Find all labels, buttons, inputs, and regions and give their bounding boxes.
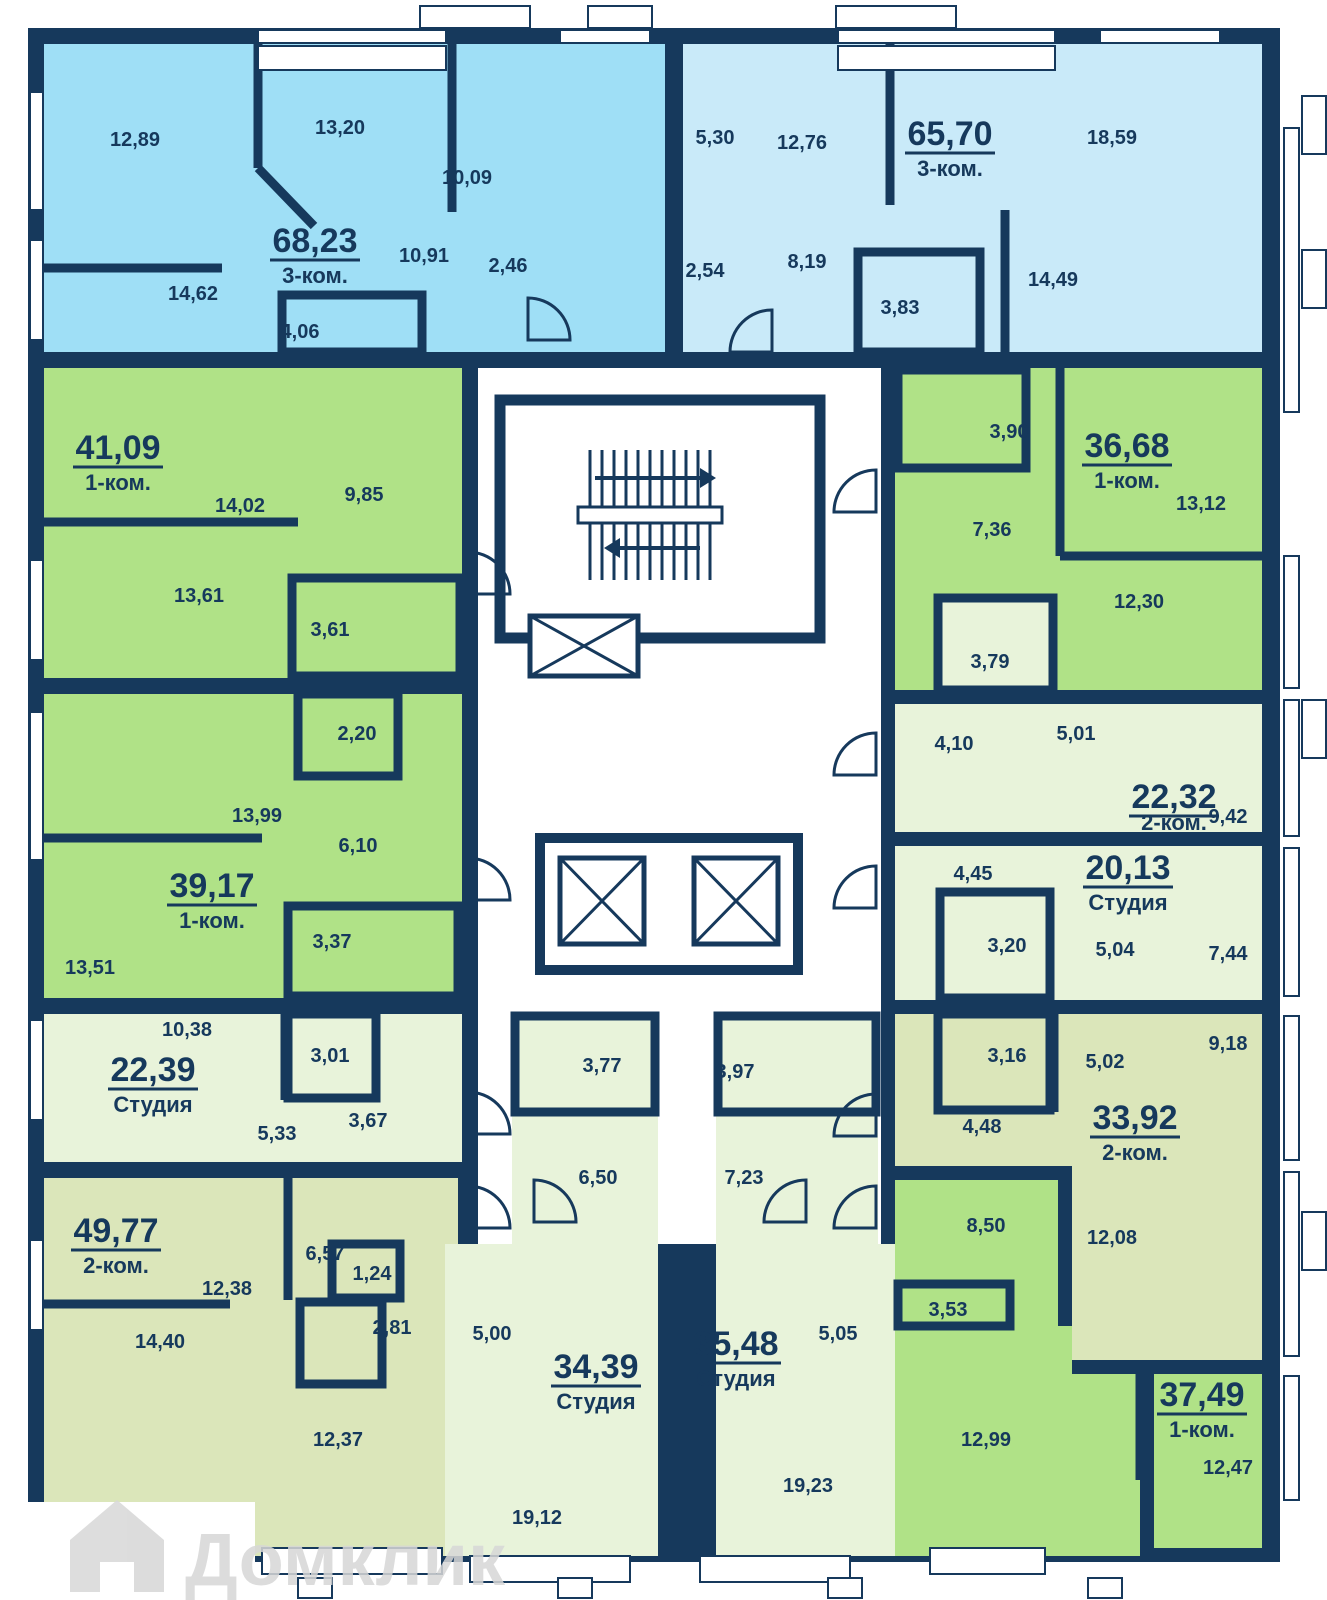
room-area-label: 12,47: [1203, 1457, 1253, 1479]
apartment-area-label: 65,70: [907, 115, 992, 153]
room-area-label: 13,12: [1176, 493, 1226, 515]
room-area-label: 12,89: [110, 129, 160, 151]
room-area-label: 5,02: [1086, 1051, 1125, 1073]
room-area-label: 3,37: [313, 931, 352, 953]
room-area-label: 5,04: [1096, 939, 1136, 961]
room-area-label: 5,00: [473, 1323, 512, 1345]
room-area-label: 3,01: [311, 1045, 350, 1067]
room-area-label: 3,61: [311, 619, 350, 641]
room-area-label: 5,30: [696, 127, 735, 149]
room-area-label: 5,01: [1057, 723, 1096, 745]
balcony-rail-top-left: [258, 46, 446, 70]
apartment-type-label: 2-ком.: [1141, 810, 1207, 835]
elevator-shaft-2: [560, 858, 644, 944]
room-area-label: 6,50: [579, 1167, 618, 1189]
room-area-label: 10,91: [399, 245, 449, 267]
apartment-type-label: Студия: [556, 1389, 635, 1414]
room-area-label: 10,38: [162, 1019, 212, 1041]
room-area-label: 7,44: [1209, 943, 1249, 965]
room-area-label: 1,24: [353, 1263, 393, 1285]
room-area-label: 3,90: [990, 421, 1029, 443]
room-area-label: 3,67: [349, 1110, 388, 1132]
room-area-label: 10,09: [442, 167, 492, 189]
apartment-area-label: 20,13: [1085, 849, 1170, 887]
room-area-label: 3,77: [583, 1055, 622, 1077]
room-area-label: 13,61: [174, 585, 224, 607]
apartment-area-label: 41,09: [75, 429, 160, 467]
apartment-20-13-zone: [895, 846, 1262, 1000]
room-area-label: 5,33: [258, 1123, 297, 1145]
elevator-shaft-3: [694, 858, 778, 944]
room-area-label: 4,10: [935, 733, 974, 755]
room-area-label: 13,51: [65, 957, 115, 979]
apartment-type-label: 1-ком.: [1169, 1417, 1235, 1442]
apartment-68-23-zone: [44, 44, 665, 352]
apartment-area-label: 36,68: [1084, 427, 1169, 465]
room-area-label: 14,62: [168, 283, 218, 305]
room-area-label: 19,23: [783, 1475, 833, 1497]
room-area-label: 14,40: [135, 1331, 185, 1353]
apartment-22-32-bath-zone: [938, 598, 1053, 690]
elevator-shaft-1: [530, 616, 638, 676]
room-area-label: 12,38: [202, 1278, 252, 1300]
room-area-label: 5,05: [819, 1323, 858, 1345]
room-area-label: 13,20: [315, 117, 365, 139]
apartment-type-label: 3-ком.: [282, 263, 348, 288]
room-area-label: 3,20: [988, 935, 1027, 957]
room-area-label: 14,02: [215, 495, 265, 517]
apartment-area-label: 39,17: [169, 867, 254, 905]
balcony-rail-bottom-3: [930, 1548, 1045, 1574]
apartment-type-label: 2-ком.: [83, 1253, 149, 1278]
apartment-area-label: 49,77: [73, 1212, 158, 1250]
apartment-type-label: 1-ком.: [179, 908, 245, 933]
apartment-type-label: Студия: [1088, 890, 1167, 915]
room-area-label: 9,18: [1209, 1033, 1248, 1055]
apartment-area-label: 37,49: [1159, 1376, 1244, 1414]
room-area-label: 12,08: [1087, 1227, 1137, 1249]
room-area-label: 3,53: [929, 1299, 968, 1321]
room-area-label: 4,06: [281, 321, 320, 343]
room-area-label: 12,76: [777, 132, 827, 154]
room-area-label: 7,23: [725, 1167, 764, 1189]
room-area-label: 8,19: [788, 251, 827, 273]
apartment-type-label: 3-ком.: [917, 156, 983, 181]
balcony-rail-top-right: [838, 46, 1055, 70]
room-area-label: 6,10: [339, 835, 378, 857]
room-area-label: 2,46: [489, 255, 528, 277]
room-area-label: 19,12: [512, 1507, 562, 1529]
watermark-text: Домклик: [185, 1518, 506, 1600]
room-area-label: 12,30: [1114, 591, 1164, 613]
apartment-area-label: 35,48: [693, 1325, 778, 1363]
apartment-area-label: 68,23: [272, 222, 357, 260]
apartment-area-label: 33,92: [1092, 1099, 1177, 1137]
room-area-label: 9,85: [345, 484, 384, 506]
apartment-area-label: 34,39: [553, 1348, 638, 1386]
apartment-type-label: 2-ком.: [1102, 1140, 1168, 1165]
room-area-label: 18,59: [1087, 127, 1137, 149]
apartment-65-70-zone: [683, 44, 1262, 352]
room-area-label: 12,99: [961, 1429, 1011, 1451]
room-area-label: 3,79: [971, 651, 1010, 673]
room-area-label: 4,45: [954, 863, 993, 885]
apartment-type-label: Студия: [113, 1092, 192, 1117]
room-area-label: 3,16: [988, 1045, 1027, 1067]
room-area-label: 7,36: [973, 519, 1012, 541]
apartment-22-39-zone: [44, 1014, 462, 1162]
room-area-label: 13,99: [232, 805, 282, 827]
room-area-label: 14,49: [1028, 269, 1078, 291]
room-area-label: 3,97: [716, 1061, 755, 1083]
room-area-label: 3,83: [881, 297, 920, 319]
floor-plan: 68,23 3-ком. 12,89 13,20 10,09 10,91 2,4…: [0, 0, 1327, 1600]
room-area-label: 4,48: [963, 1116, 1002, 1138]
apartment-type-label: Студия: [696, 1366, 775, 1391]
apartment-type-label: 1-ком.: [85, 470, 151, 495]
room-area-label: 12,37: [313, 1429, 363, 1451]
room-area-label: 6,57: [306, 1243, 345, 1265]
room-area-label: 2,81: [373, 1317, 412, 1339]
room-area-label: 2,54: [686, 260, 726, 282]
room-area-label: 8,50: [967, 1215, 1006, 1237]
apartment-37-49-hall-zone: [895, 1180, 1058, 1326]
room-area-label: 2,20: [338, 723, 377, 745]
room-area-label: 9,42: [1209, 806, 1248, 828]
apartment-type-label: 1-ком.: [1094, 468, 1160, 493]
apartment-area-label: 22,39: [110, 1051, 195, 1089]
